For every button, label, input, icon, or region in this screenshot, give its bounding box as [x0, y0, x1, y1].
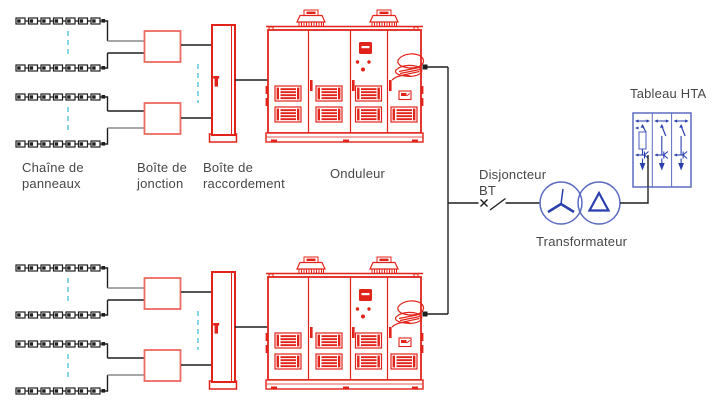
star-winding-icon	[548, 189, 574, 212]
label-junction-box-1: Boîte de	[137, 160, 187, 175]
single-line-diagram: Chaîne de panneaux Boîte de jonction Boî…	[0, 0, 718, 400]
mv-switchboard-symbol	[633, 113, 691, 187]
label-panel-string-2: panneaux	[22, 176, 81, 191]
label-lv-breaker-2: BT	[479, 183, 496, 198]
delta-winding-icon	[590, 193, 609, 211]
pv-branch-top	[16, 10, 448, 147]
label-connection-box-2: raccordement	[203, 176, 285, 191]
label-panel-string-1: Chaîne de	[22, 160, 84, 175]
label-transformer: Transformateur	[536, 234, 628, 249]
ac-bus	[448, 67, 479, 314]
transformer-symbol	[540, 182, 648, 224]
lv-breaker-symbol	[481, 199, 541, 211]
label-lv-breaker-1: Disjoncteur	[479, 167, 547, 182]
label-connection-box-1: Boîte de	[203, 160, 253, 175]
label-mv-switchboard: Tableau HTA	[630, 86, 707, 101]
label-junction-box-2: jonction	[136, 176, 183, 191]
diagram-svg: Chaîne de panneaux Boîte de jonction Boî…	[0, 0, 718, 400]
pv-branch-bottom	[16, 257, 448, 394]
label-inverter: Onduleur	[330, 166, 386, 181]
